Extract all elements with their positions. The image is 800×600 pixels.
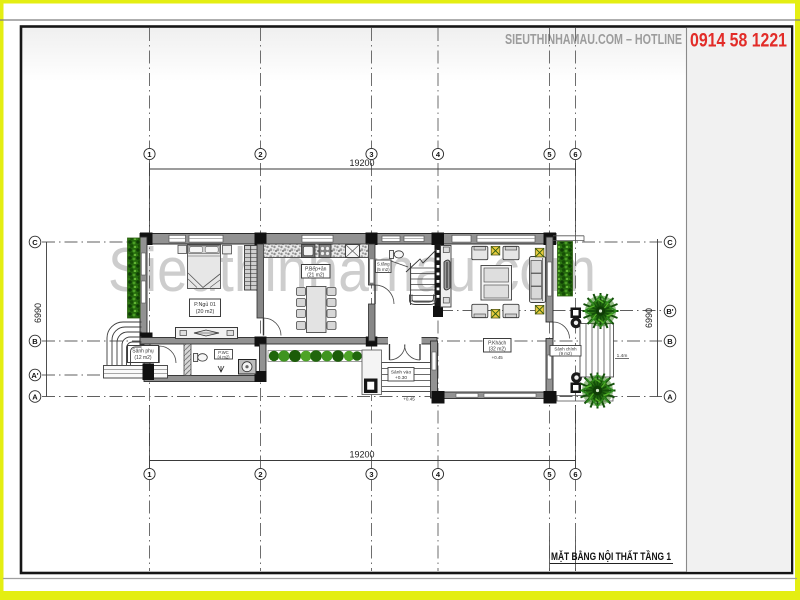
svg-text:B: B bbox=[32, 337, 38, 346]
svg-text:(5 m2): (5 m2) bbox=[377, 267, 390, 272]
svg-text:(4 m2): (4 m2) bbox=[217, 354, 230, 359]
svg-text:+0.30: +0.30 bbox=[395, 375, 407, 381]
svg-text:P.Ngủ 01: P.Ngủ 01 bbox=[194, 301, 216, 308]
svg-text:(32 m2): (32 m2) bbox=[489, 347, 507, 353]
svg-text:6990: 6990 bbox=[33, 303, 43, 323]
svg-text:Sảnh phụ: Sảnh phụ bbox=[132, 349, 154, 355]
svg-text:19200: 19200 bbox=[349, 450, 374, 460]
svg-text:1: 1 bbox=[147, 150, 151, 159]
svg-text:(9 m2): (9 m2) bbox=[559, 351, 572, 356]
svg-text:5: 5 bbox=[547, 150, 551, 159]
svg-text:2: 2 bbox=[258, 470, 262, 479]
svg-text:MẶT BẰNG NỘI THẤT TẦNG 1: MẶT BẰNG NỘI THẤT TẦNG 1 bbox=[551, 550, 671, 563]
svg-text:(20 m2): (20 m2) bbox=[196, 309, 215, 315]
svg-text:+0.45: +0.45 bbox=[492, 355, 504, 360]
svg-text:6: 6 bbox=[573, 470, 577, 479]
svg-text:0914 58 1221: 0914 58 1221 bbox=[690, 31, 787, 52]
svg-text:+0.45: +0.45 bbox=[403, 397, 415, 402]
svg-text:3: 3 bbox=[369, 470, 373, 479]
svg-text:2: 2 bbox=[258, 150, 262, 159]
svg-text:5: 5 bbox=[547, 470, 551, 479]
svg-text:3: 3 bbox=[369, 150, 373, 159]
svg-text:(12 m2): (12 m2) bbox=[134, 355, 152, 361]
svg-text:(21 m2): (21 m2) bbox=[307, 273, 325, 279]
svg-text:6990: 6990 bbox=[644, 308, 654, 328]
svg-text:C: C bbox=[667, 238, 673, 247]
svg-text:A: A bbox=[667, 392, 673, 401]
svg-text:SIEUTHINHAMAU.COM – HOTLINE: SIEUTHINHAMAU.COM – HOTLINE bbox=[505, 32, 682, 48]
svg-text:1.4m: 1.4m bbox=[617, 353, 628, 359]
svg-text:B: B bbox=[667, 337, 673, 346]
svg-text:Sảnh vào: Sảnh vào bbox=[391, 370, 412, 376]
svg-text:A: A bbox=[32, 392, 38, 401]
svg-text:A': A' bbox=[31, 371, 38, 380]
svg-text:S.tầng: S.tầng bbox=[377, 262, 390, 267]
svg-text:1: 1 bbox=[147, 470, 151, 479]
svg-text:C: C bbox=[32, 238, 38, 247]
svg-text:6: 6 bbox=[573, 150, 577, 159]
svg-text:B': B' bbox=[666, 307, 673, 316]
